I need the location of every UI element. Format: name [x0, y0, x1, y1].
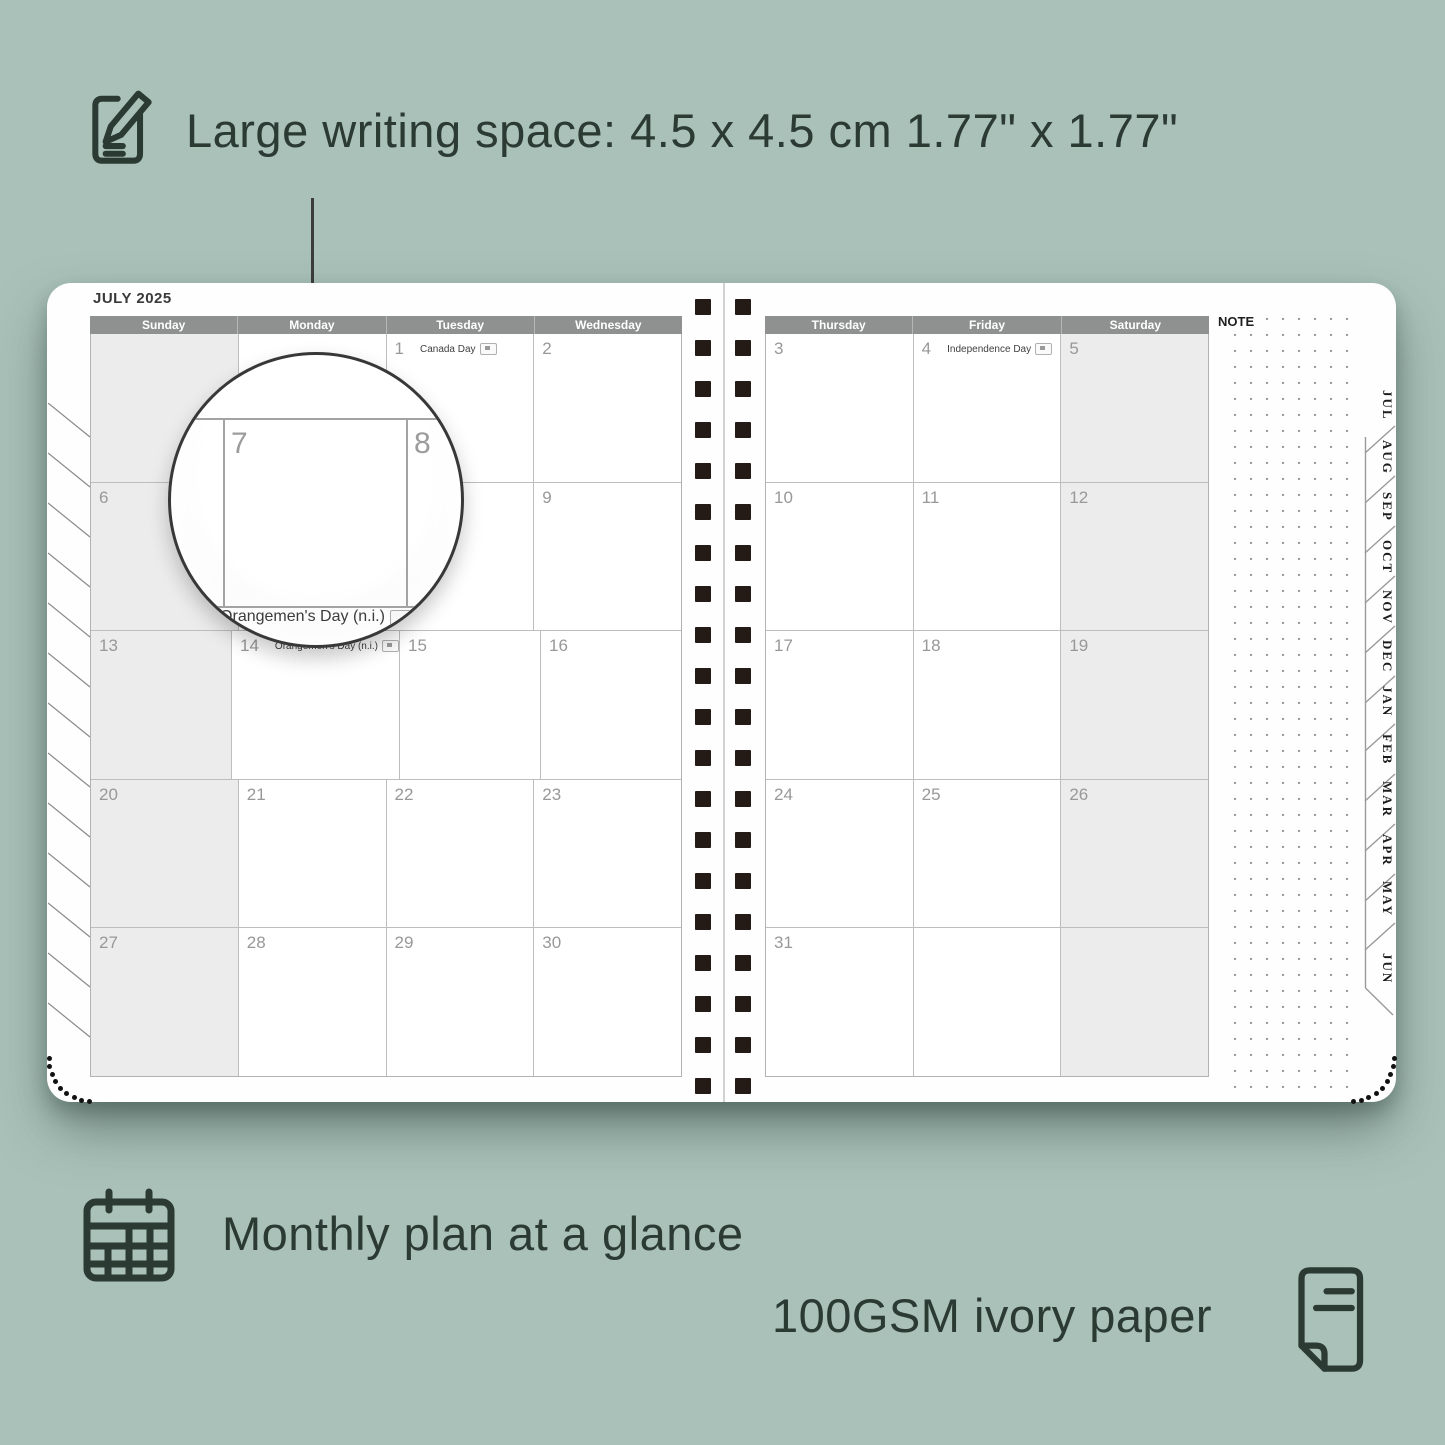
- binding-hole: [695, 832, 711, 848]
- holiday-flag-icon: [382, 640, 399, 652]
- binding-hole: [695, 996, 711, 1012]
- calendar-cell: 9: [534, 483, 681, 631]
- calendar-cell: 17: [766, 631, 914, 779]
- month-tab-mar: MAR: [1369, 778, 1395, 822]
- binding-hole: [735, 914, 751, 930]
- day-number: 20: [91, 780, 118, 805]
- binding-hole: [695, 340, 711, 356]
- calendar-cell: 23: [534, 780, 681, 928]
- binding-hole: [695, 955, 711, 971]
- day-number: 16: [541, 631, 568, 656]
- binding-hole: [695, 709, 711, 725]
- binding-hole: [735, 1037, 751, 1053]
- binding-hole: [695, 1037, 711, 1053]
- pencil-note-icon: [85, 80, 171, 176]
- day-header: Friday: [913, 316, 1061, 334]
- magnified-day-number: 7: [231, 427, 248, 461]
- day-number: 17: [766, 631, 793, 656]
- day-number: 12: [1061, 483, 1088, 508]
- paper-annotation: 100GSM ivory paper: [772, 1288, 1212, 1343]
- calendar-cell: 29: [387, 928, 535, 1076]
- calendar-cell: 28: [239, 928, 387, 1076]
- day-number: 29: [387, 928, 414, 953]
- day-number: 6: [91, 483, 108, 508]
- calendar-cell: 22: [387, 780, 535, 928]
- calendar-cell: 20: [91, 780, 239, 928]
- binding-hole: [695, 873, 711, 889]
- day-header: Monday: [238, 316, 386, 334]
- magnified-grid-line: [171, 418, 461, 420]
- holiday-label: Canada Day: [420, 343, 497, 355]
- binding-hole: [695, 627, 711, 643]
- binding-hole: [695, 668, 711, 684]
- calendar-cell: [1061, 928, 1208, 1076]
- day-number: 15: [400, 631, 427, 656]
- calendar-cell: 13: [91, 631, 232, 779]
- calendar-cell: 14Orangemen's Day (n.i.): [232, 631, 400, 779]
- day-number: 5: [1061, 334, 1078, 359]
- day-number: 19: [1061, 631, 1088, 656]
- holiday-flag-icon: [390, 610, 412, 625]
- magnified-grid-line: [223, 418, 225, 606]
- day-header: Saturday: [1062, 316, 1209, 334]
- binding-hole: [695, 463, 711, 479]
- day-header: Wednesday: [535, 316, 682, 334]
- spiral-binding-left: [695, 283, 711, 1102]
- day-header: Sunday: [90, 316, 238, 334]
- calendar-cell: 3: [766, 334, 914, 482]
- calendar-cell: 19: [1061, 631, 1208, 779]
- month-tab-oct: OCT: [1369, 535, 1395, 579]
- binding-hole: [735, 791, 751, 807]
- binding-hole: [695, 299, 711, 315]
- month-tab-aug: AUG: [1369, 435, 1395, 479]
- binding-hole: [735, 627, 751, 643]
- month-tab-nov: NOV: [1369, 585, 1395, 629]
- calendar-cell: 4Independence Day: [914, 334, 1062, 482]
- binding-hole: [735, 709, 751, 725]
- day-number: 10: [766, 483, 793, 508]
- binding-hole: [735, 381, 751, 397]
- calendar-cell: 21: [239, 780, 387, 928]
- binding-hole: [695, 545, 711, 561]
- binding-hole: [735, 873, 751, 889]
- day-number: 24: [766, 780, 793, 805]
- page-edge-hatching: [48, 403, 92, 1063]
- day-number: 23: [534, 780, 561, 805]
- holiday-flag-icon: [480, 343, 497, 355]
- magnified-day-number: 8: [414, 427, 431, 461]
- calendar-week-row: 242526: [766, 780, 1208, 929]
- calendar-cell: 15: [400, 631, 541, 779]
- day-number: 1: [387, 334, 404, 359]
- day-number: 25: [914, 780, 941, 805]
- month-tab-sep: SEP: [1369, 485, 1395, 529]
- day-number: 3: [766, 334, 783, 359]
- binding-hole: [735, 586, 751, 602]
- binding-hole: [735, 340, 751, 356]
- calendar-cell: 5: [1061, 334, 1208, 482]
- calendar-cell: 25: [914, 780, 1062, 928]
- month-tab-apr: APR: [1369, 828, 1395, 872]
- day-number: 4: [914, 334, 931, 359]
- day-number: 13: [91, 631, 118, 656]
- day-number: 31: [766, 928, 793, 953]
- calendar-cell: 16: [541, 631, 681, 779]
- calendar-cell: 24: [766, 780, 914, 928]
- month-tab-jul: JUL: [1369, 383, 1395, 427]
- magnified-grid-line: [406, 418, 408, 606]
- binding-hole: [735, 545, 751, 561]
- binding-hole: [735, 1078, 751, 1094]
- calendar-week-row: 34Independence Day5: [766, 334, 1208, 483]
- binding-hole: [695, 791, 711, 807]
- binding-hole: [695, 914, 711, 930]
- calendar-icon: [78, 1186, 180, 1286]
- month-tab-dec: DEC: [1369, 635, 1395, 679]
- calendar-cell: [914, 928, 1062, 1076]
- calendar-cell: 10: [766, 483, 914, 631]
- binding-hole: [735, 996, 751, 1012]
- calendar-cell: 31: [766, 928, 914, 1076]
- day-header: Thursday: [765, 316, 913, 334]
- binding-hole: [695, 504, 711, 520]
- binding-hole: [735, 955, 751, 971]
- paper-sheet-icon: [1272, 1262, 1377, 1377]
- writing-space-annotation: Large writing space: 4.5 x 4.5 cm 1.77" …: [186, 103, 1178, 158]
- binding-hole: [735, 832, 751, 848]
- binding-hole: [735, 299, 751, 315]
- holiday-flag-icon: [1035, 343, 1052, 355]
- day-number: 28: [239, 928, 266, 953]
- day-number: 30: [534, 928, 561, 953]
- calendar-cell: 12: [1061, 483, 1208, 631]
- day-number: 2: [534, 334, 551, 359]
- magnifier-circle: 7 8 Orangemen's Day (n.i.): [168, 352, 464, 648]
- month-title: JULY 2025: [93, 290, 172, 307]
- day-number: 9: [534, 483, 551, 508]
- calendar-week-row: 1314Orangemen's Day (n.i.)1516: [91, 631, 681, 780]
- day-number: 21: [239, 780, 266, 805]
- calendar-week-row: 101112: [766, 483, 1208, 632]
- spiral-binding-right: [735, 283, 751, 1102]
- monthly-plan-annotation: Monthly plan at a glance: [222, 1206, 744, 1261]
- holiday-label: Independence Day: [947, 343, 1052, 355]
- calendar-week-row: 27282930: [91, 928, 681, 1076]
- binding-hole: [735, 463, 751, 479]
- month-tab-jan: JAN: [1369, 680, 1395, 724]
- magnified-holiday: Orangemen's Day (n.i.): [171, 608, 461, 626]
- calendar-week-row: 20212223: [91, 780, 681, 929]
- note-label: NOTE: [1218, 314, 1260, 329]
- right-calendar-grid: ThursdayFridaySaturday 34Independence Da…: [765, 316, 1209, 1077]
- product-image: Large writing space: 4.5 x 4.5 cm 1.77" …: [0, 0, 1445, 1445]
- note-dot-grid: [1223, 317, 1357, 1089]
- day-number: 22: [387, 780, 414, 805]
- binding-hole: [735, 422, 751, 438]
- calendar-cell: 18: [914, 631, 1062, 779]
- binding-hole: [735, 750, 751, 766]
- calendar-cell: 2: [534, 334, 681, 482]
- calendar-cell: 11: [914, 483, 1062, 631]
- binding-hole: [695, 422, 711, 438]
- binding-hole: [695, 1078, 711, 1094]
- month-tab-feb: FEB: [1369, 728, 1395, 772]
- binding-hole: [695, 586, 711, 602]
- day-header: Tuesday: [387, 316, 535, 334]
- binding-hole: [735, 504, 751, 520]
- day-number: 26: [1061, 780, 1088, 805]
- month-tab-jun: JUN: [1369, 947, 1395, 991]
- month-tab-may: MAY: [1369, 877, 1395, 921]
- day-number: 18: [914, 631, 941, 656]
- calendar-week-row: 171819: [766, 631, 1208, 780]
- binding-hole: [735, 668, 751, 684]
- day-number: 27: [91, 928, 118, 953]
- binding-hole: [695, 381, 711, 397]
- calendar-cell: 27: [91, 928, 239, 1076]
- calendar-cell: 30: [534, 928, 681, 1076]
- page-gutter: [723, 283, 725, 1102]
- calendar-week-row: 31: [766, 928, 1208, 1076]
- day-number: 11: [914, 483, 940, 508]
- calendar-cell: 26: [1061, 780, 1208, 928]
- binding-hole: [695, 750, 711, 766]
